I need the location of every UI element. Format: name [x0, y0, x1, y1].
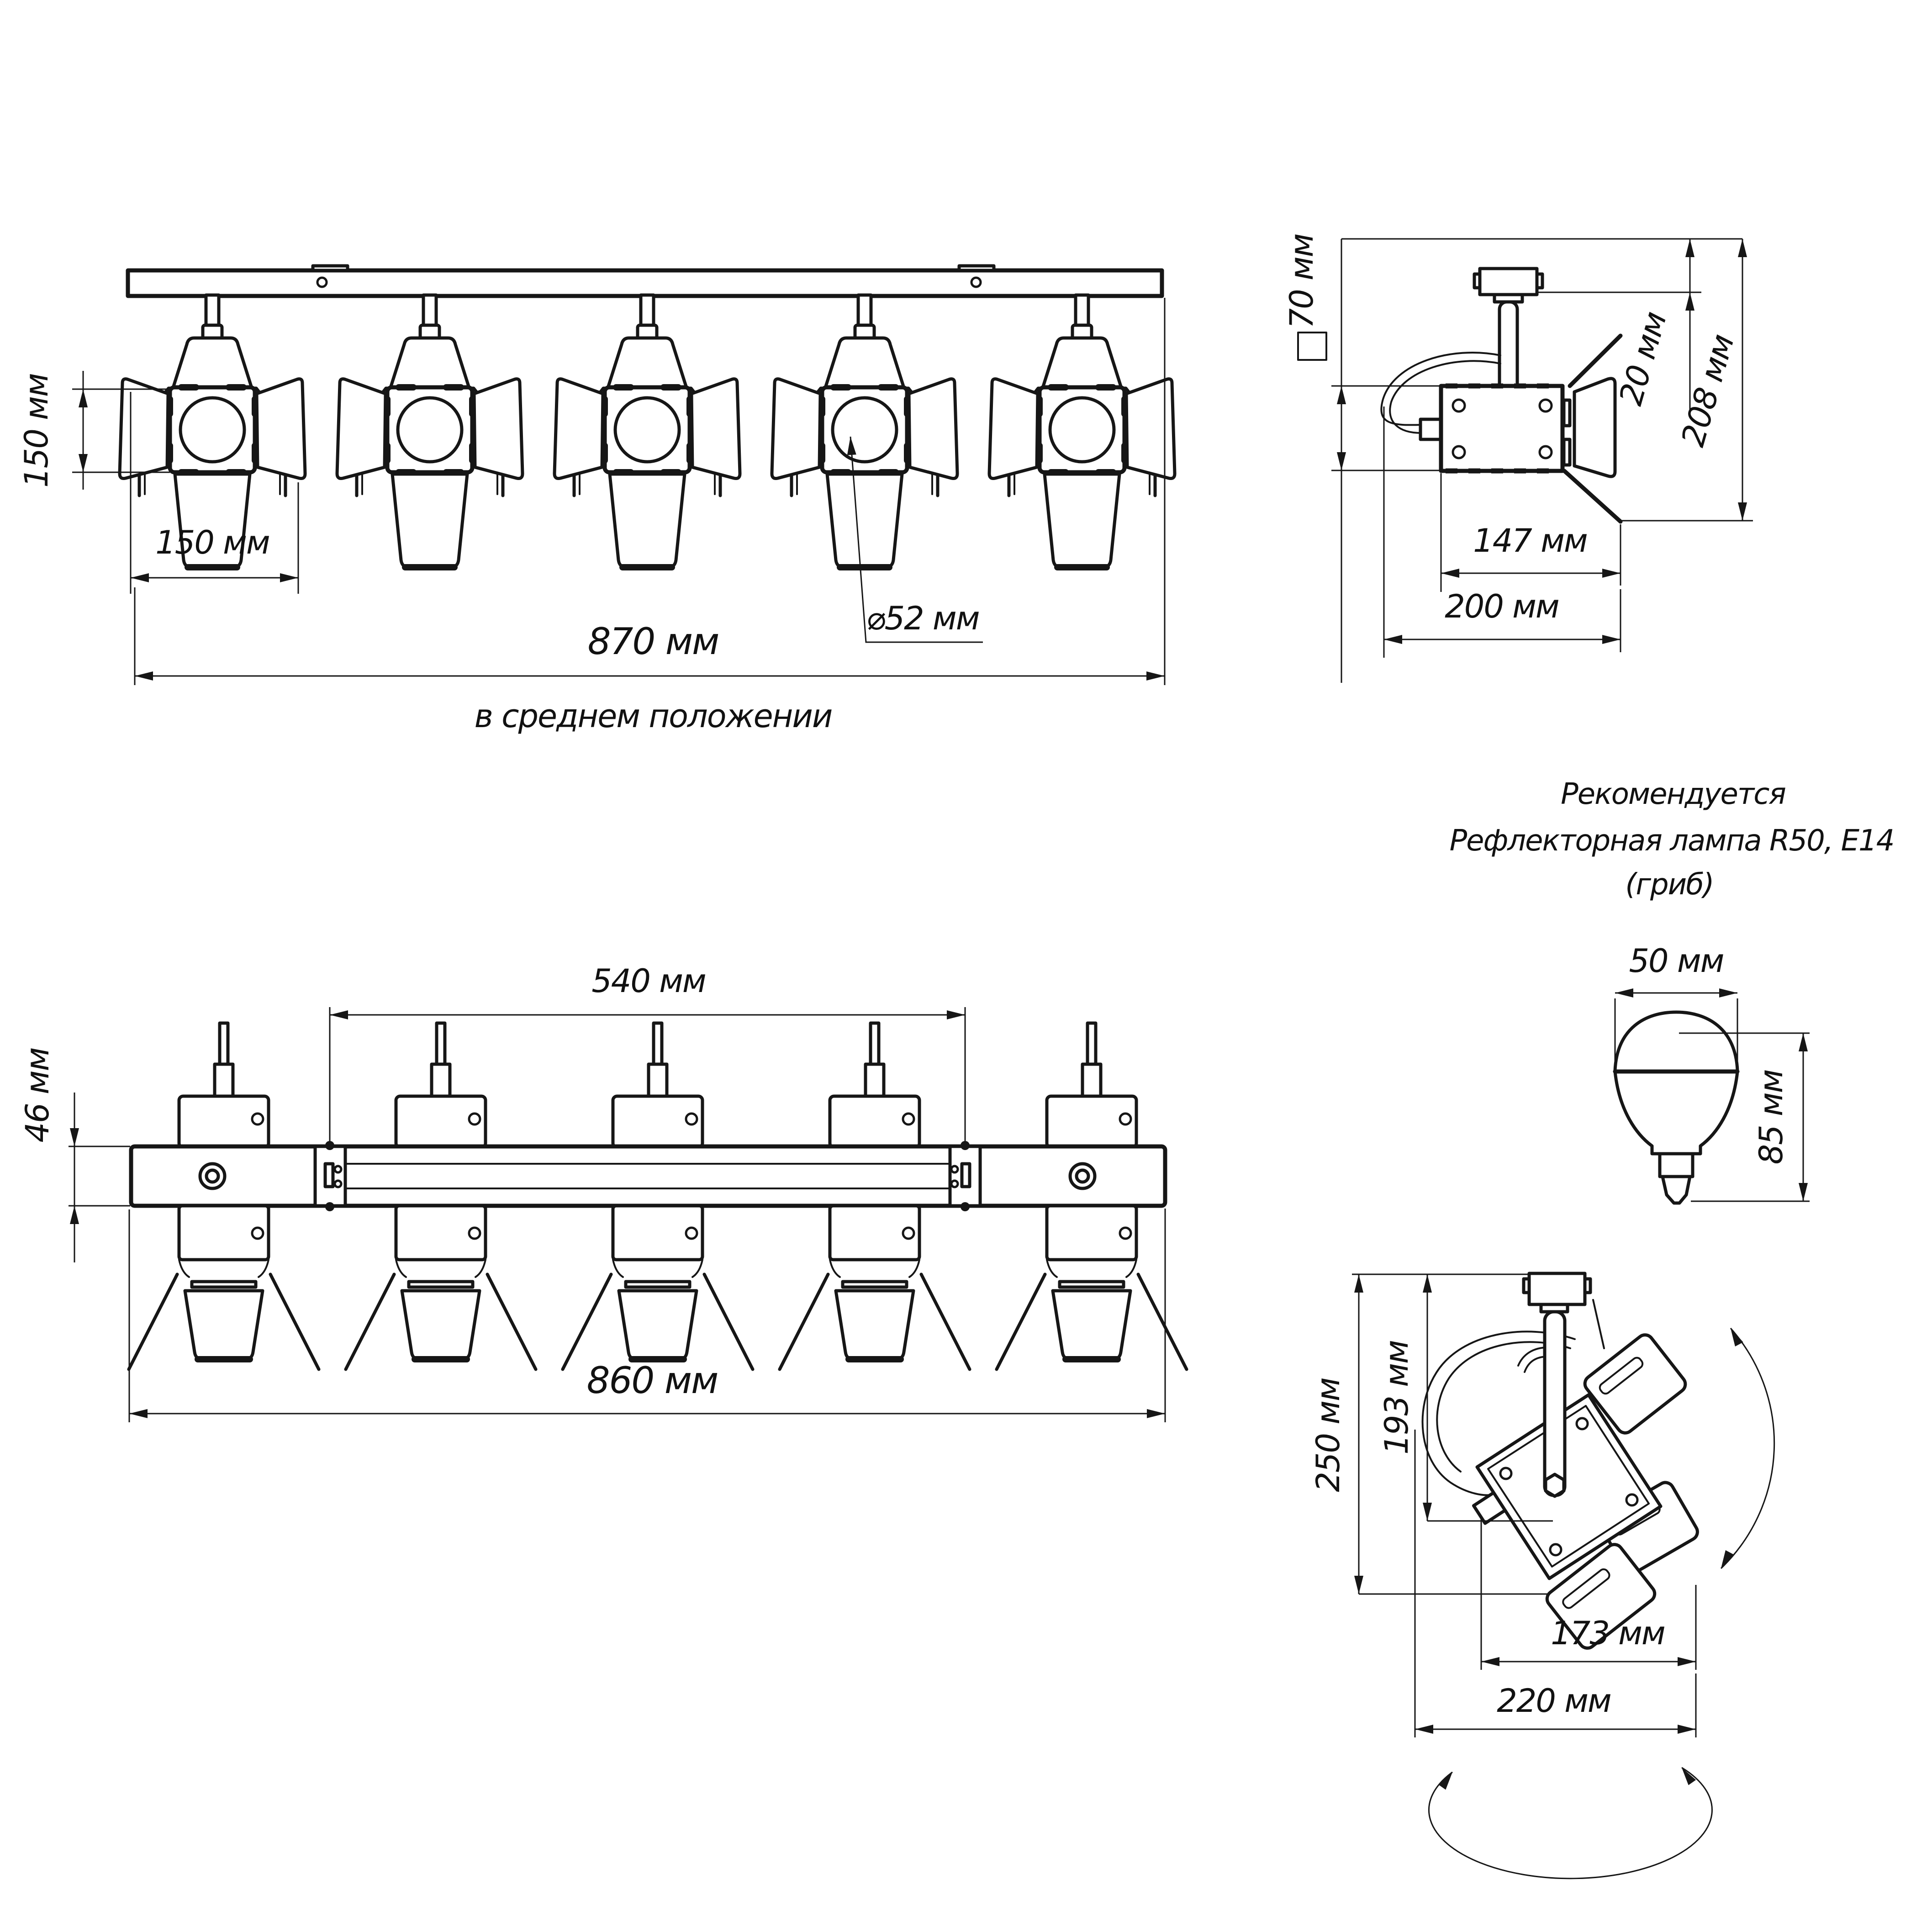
label-middle-position: в среднем положении: [475, 697, 832, 735]
dim-85: 85 мм: [1753, 1070, 1790, 1164]
bulb-tip: [1663, 1177, 1690, 1203]
rec-line2: Рефлекторная лампа R50, E14: [1450, 824, 1894, 858]
dim-lens-diameter: ⌀52 мм: [866, 600, 979, 637]
dim-147: 147 мм: [1473, 522, 1587, 560]
dim-860: 860 мм: [587, 1359, 718, 1402]
view-side: 70 мм 20 мм 208 мм 147 мм 200 мм: [1283, 234, 1753, 683]
dim-870: 870 мм: [588, 620, 719, 663]
view-front: 150 мм 150 мм ⌀52 мм 870 мм в среднем по…: [18, 266, 1175, 735]
bar-bolt-right: [1070, 1164, 1095, 1188]
spot-3: [554, 295, 740, 567]
dim-200: 200 мм: [1445, 588, 1559, 625]
dim-208: 208 мм: [1674, 331, 1742, 451]
pivot-nut: [1546, 1474, 1564, 1496]
track-screw: [971, 278, 981, 287]
bar-joint-right: [950, 1141, 980, 1211]
track-bar: [128, 270, 1162, 296]
rec-line1: Рекомендуется: [1561, 777, 1785, 811]
dim-46: 46 мм: [19, 1048, 56, 1142]
spot-4: [772, 295, 957, 567]
rec-line3: (гриб): [1625, 868, 1713, 902]
view-bulb: 50 мм 85 мм: [1615, 942, 1810, 1203]
dim-20: 20 мм: [1612, 308, 1674, 409]
dim-50: 50 мм: [1629, 942, 1724, 980]
dim-193: 193 мм: [1378, 1341, 1415, 1455]
view-plan: 540 мм 46 мм 860 мм: [19, 962, 1187, 1422]
spot-5: [989, 295, 1175, 567]
tilt-ceiling-block: [1529, 1273, 1585, 1304]
dim-150-vertical: 150 мм: [18, 374, 55, 488]
bulb-base: [1660, 1154, 1693, 1177]
dim-173: 173 мм: [1551, 1615, 1665, 1652]
spot-2: [337, 295, 523, 567]
dim-250: 250 мм: [1309, 1378, 1347, 1492]
lamp-recommendation: Рекомендуется Рефлекторная лампа R50, E1…: [1450, 777, 1894, 902]
side-flap-front: [1574, 379, 1615, 477]
dim-70: 70 мм: [1283, 234, 1320, 328]
dim-220: 220 мм: [1497, 1682, 1611, 1720]
bar: [131, 1146, 1165, 1206]
cable-connector: [1420, 419, 1441, 439]
track-screw: [317, 278, 327, 287]
square-symbol: [1298, 333, 1326, 360]
dim-150-horizontal: 150 мм: [155, 524, 269, 561]
technical-drawing-canvas: 150 мм 150 мм ⌀52 мм 870 мм в среднем по…: [0, 0, 1932, 1932]
bar-joint-left: [315, 1141, 345, 1211]
view-tilted: 250 мм 193 мм 173 мм 220 мм: [1309, 1273, 1774, 1879]
bar-bolt-left: [200, 1164, 225, 1188]
tilt-stem: [1545, 1312, 1565, 1495]
dim-540: 540 мм: [591, 962, 706, 1000]
ceiling-block: [1480, 269, 1537, 295]
